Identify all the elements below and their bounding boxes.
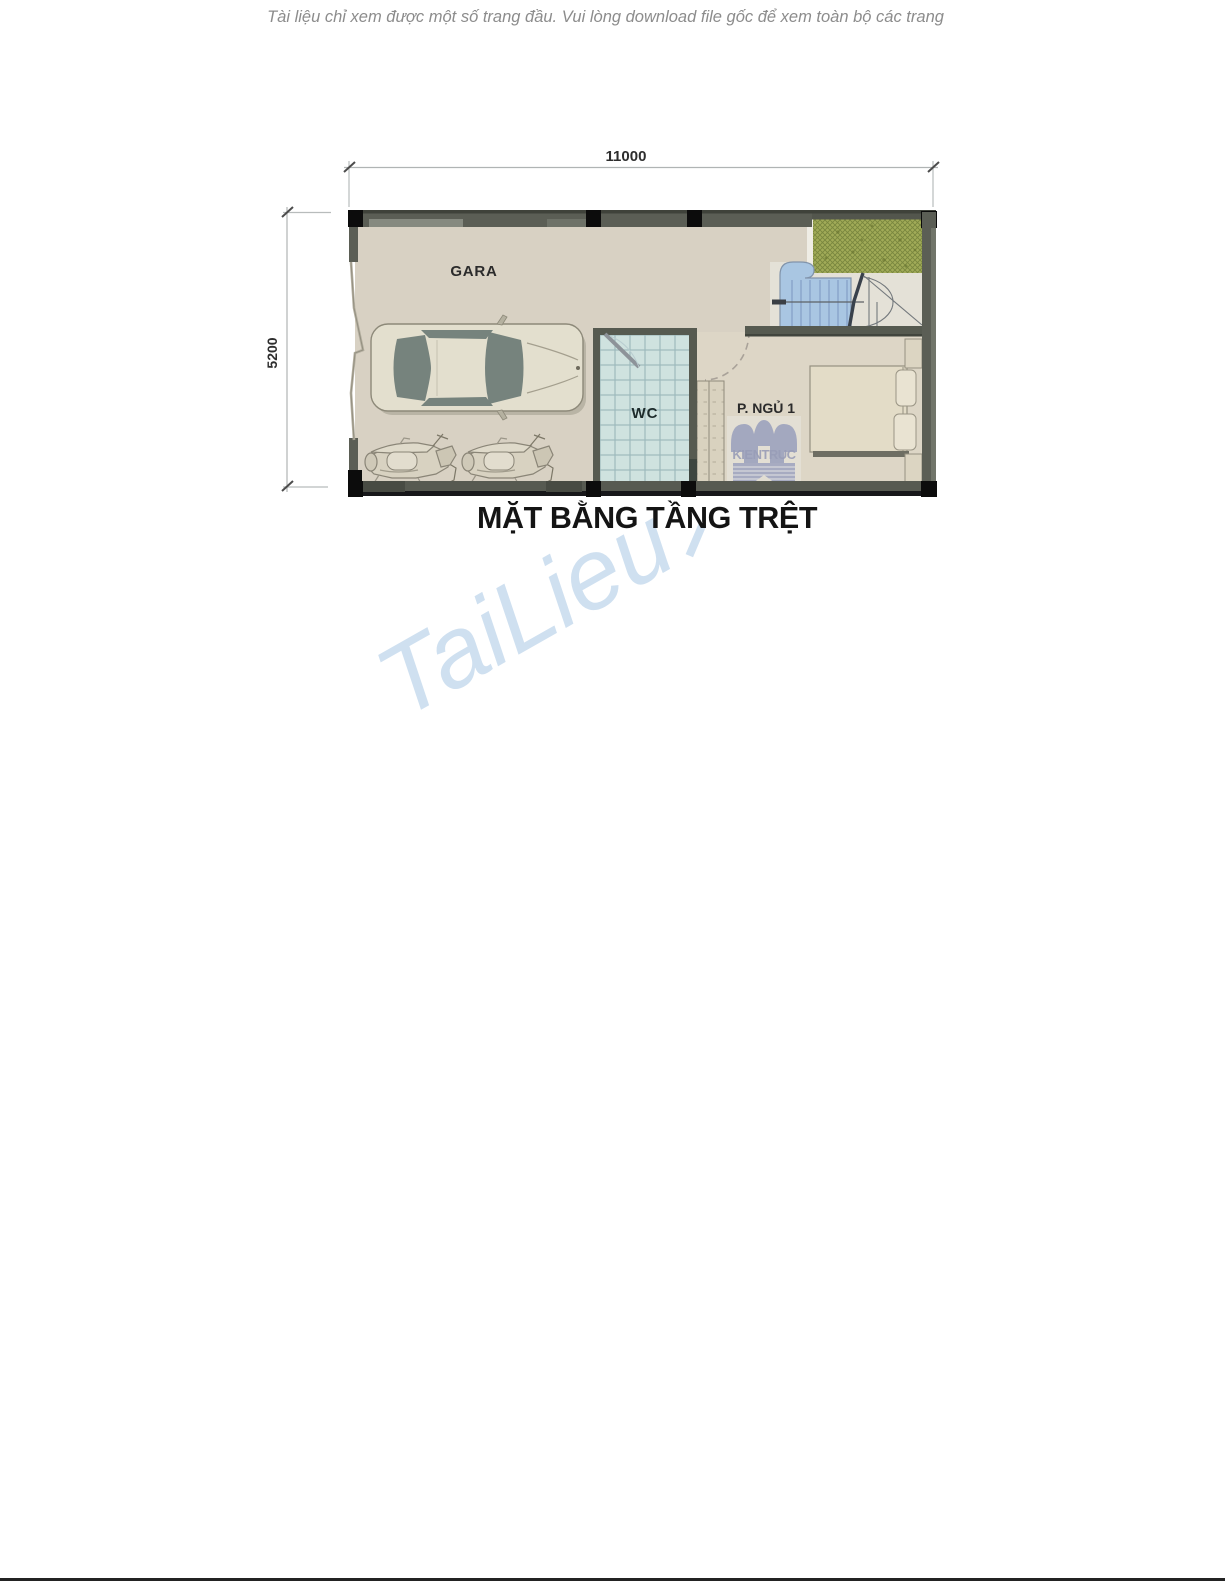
svg-text:11000: 11000 — [606, 148, 647, 165]
svg-text:5200: 5200 — [264, 337, 280, 368]
svg-text:WC: WC — [632, 405, 659, 422]
svg-text:MẶT BẰNG TẦNG TRỆT: MẶT BẰNG TẦNG TRỆT — [477, 499, 818, 535]
svg-text:P. NGỦ 1: P. NGỦ 1 — [737, 399, 795, 416]
svg-text:KIENTRUC: KIENTRUC — [732, 447, 796, 462]
svg-text:GARA: GARA — [450, 263, 497, 280]
